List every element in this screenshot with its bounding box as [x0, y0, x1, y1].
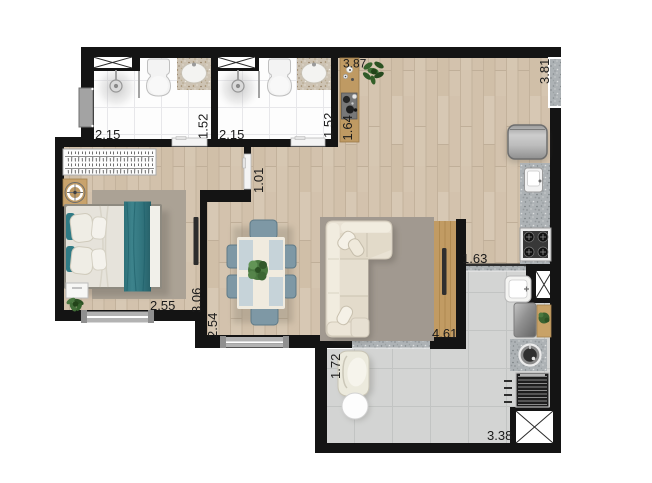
svg-text:3.81: 3.81 [537, 59, 552, 84]
svg-text:2.54: 2.54 [205, 313, 220, 338]
svg-text:2.15: 2.15 [219, 127, 244, 142]
svg-text:3.06: 3.06 [189, 288, 204, 313]
svg-text:1.52: 1.52 [321, 113, 336, 138]
svg-text:1.52: 1.52 [196, 114, 211, 139]
svg-text:1.72: 1.72 [328, 354, 343, 379]
svg-text:2.15: 2.15 [95, 127, 120, 142]
svg-text:1.01: 1.01 [251, 168, 266, 193]
svg-text:1.63: 1.63 [462, 251, 487, 266]
svg-text:2.55: 2.55 [150, 298, 175, 313]
svg-text:3.38: 3.38 [487, 428, 512, 443]
svg-text:3.87: 3.87 [343, 57, 367, 71]
svg-text:1.64: 1.64 [340, 115, 355, 140]
svg-text:4.61: 4.61 [432, 326, 457, 341]
